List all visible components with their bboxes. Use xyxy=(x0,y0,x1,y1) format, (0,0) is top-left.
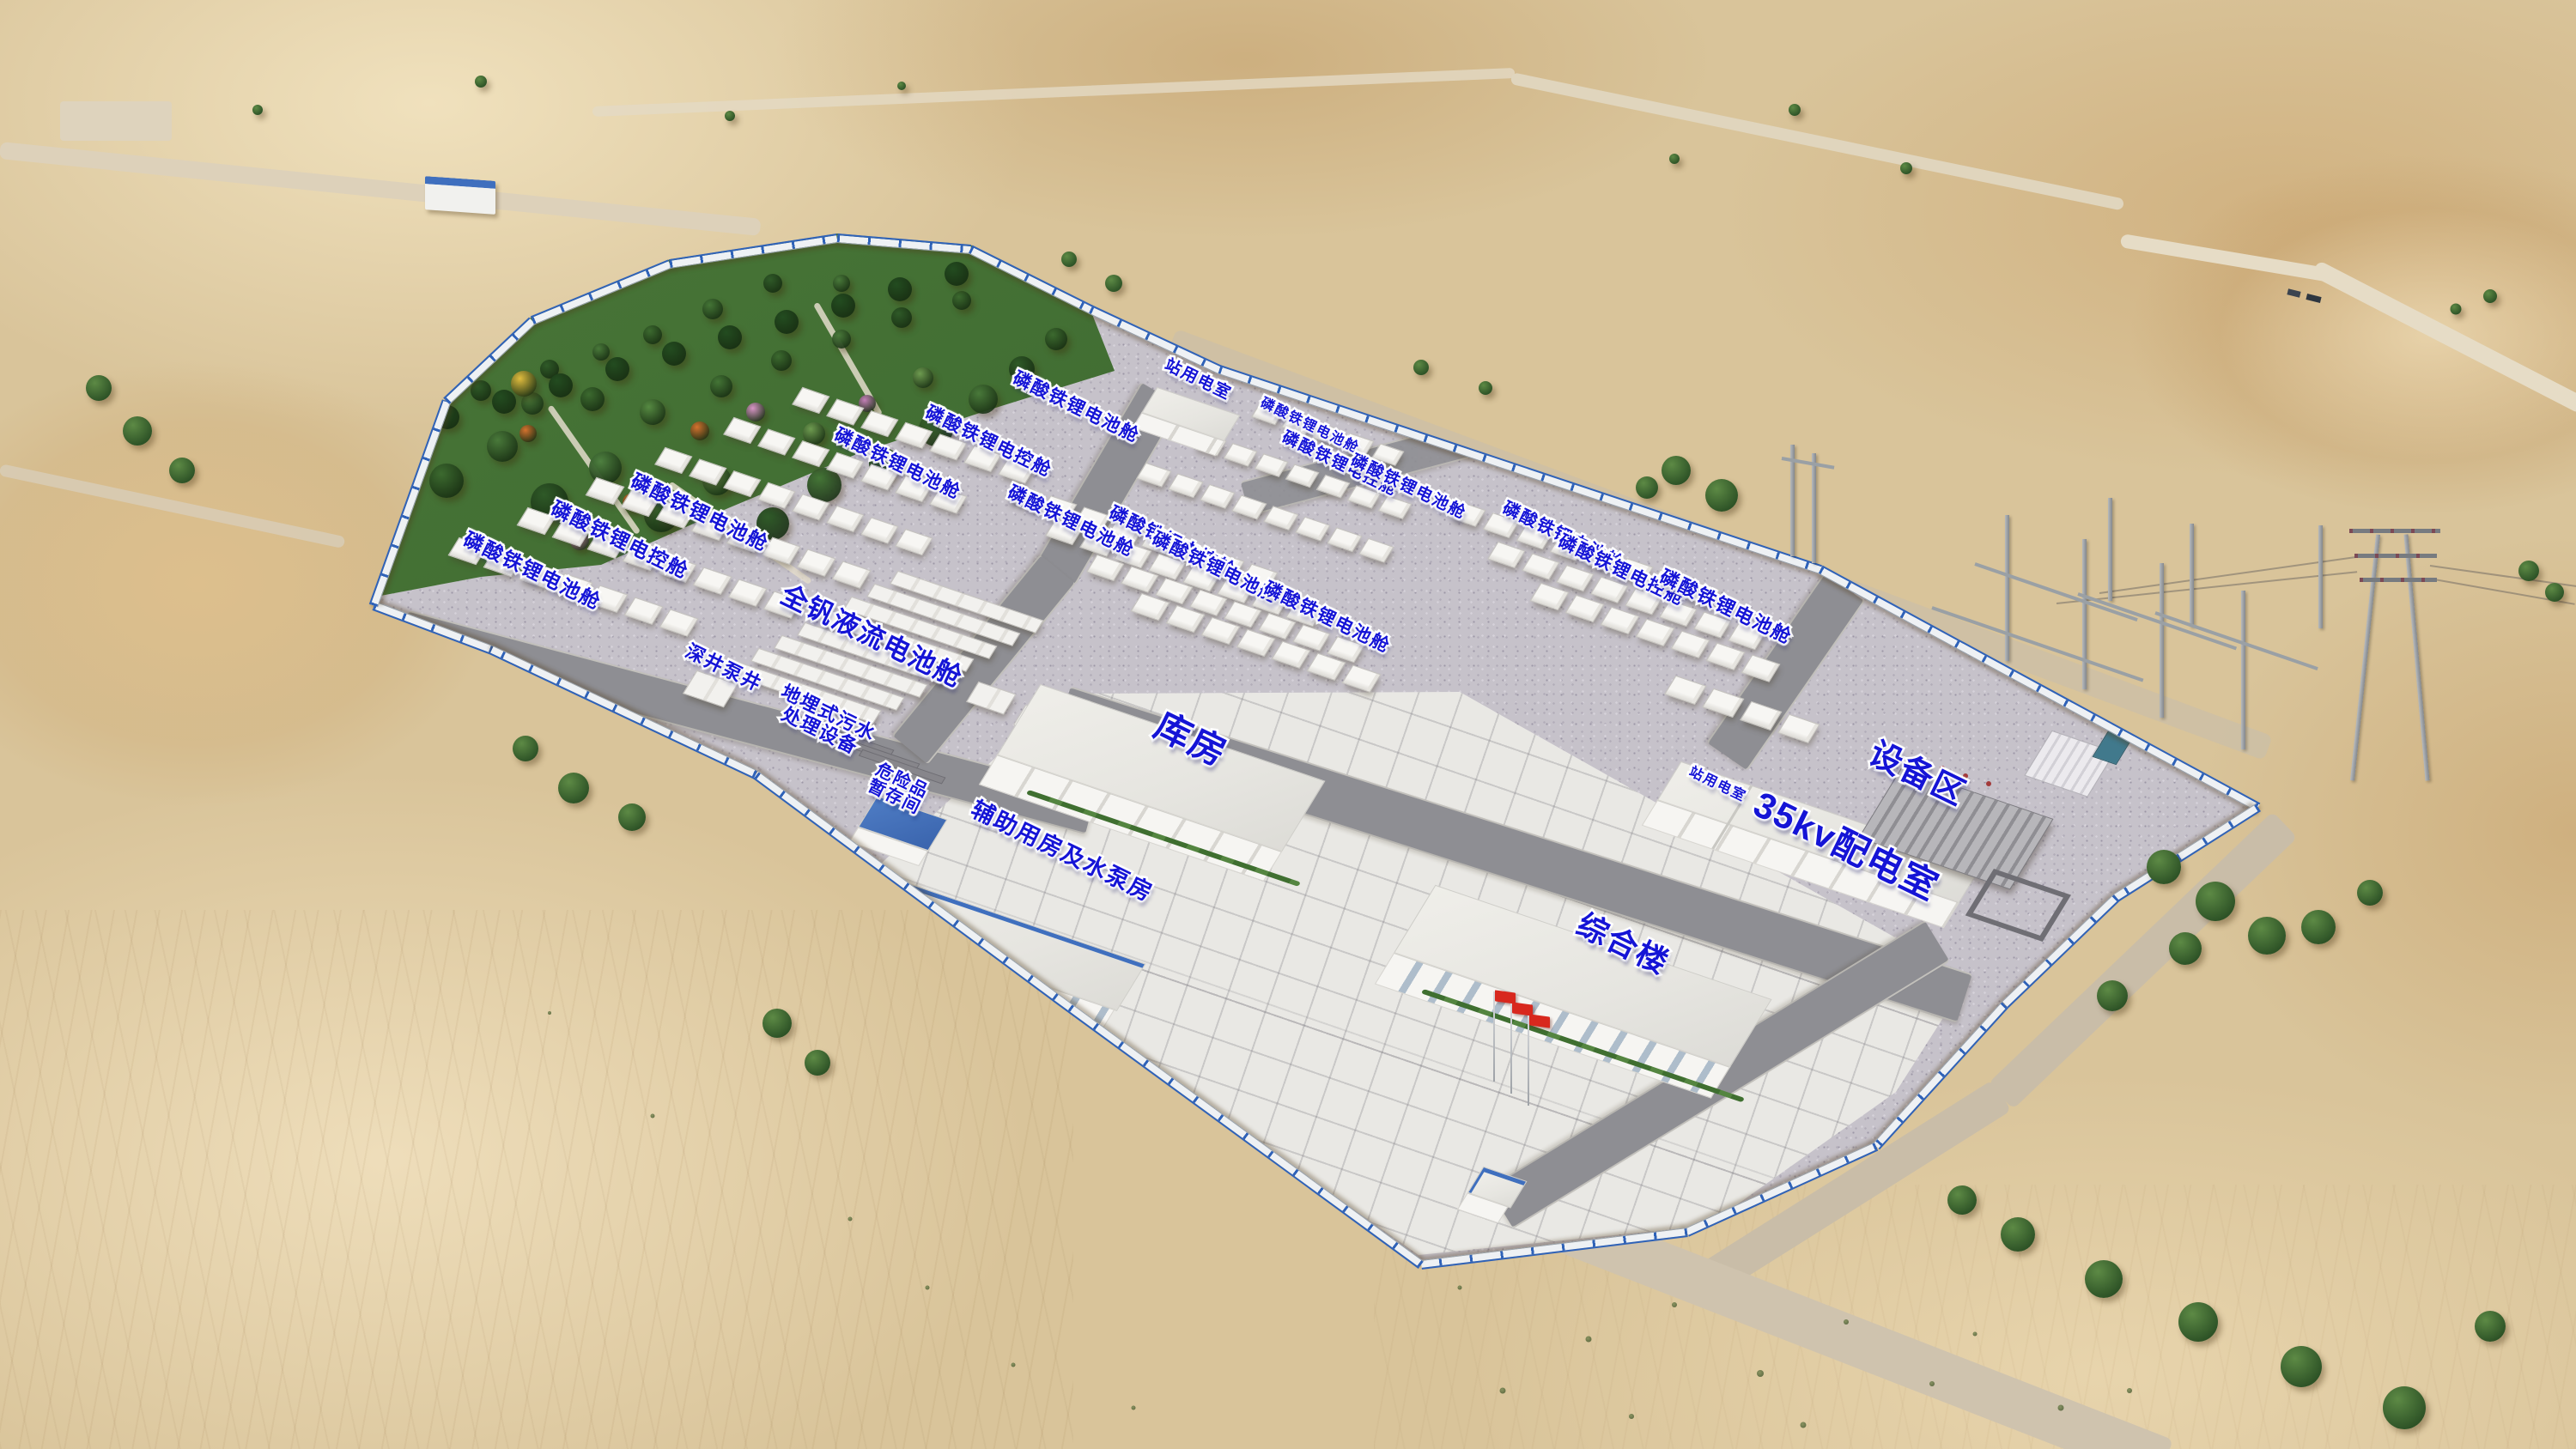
tree xyxy=(725,111,735,121)
tree xyxy=(618,803,646,831)
substation-mast xyxy=(2318,525,2323,628)
desert-shrub xyxy=(1500,1388,1506,1394)
battery-cabin-box xyxy=(1167,606,1204,632)
desert-shrub xyxy=(1844,1319,1849,1325)
desert-shrub xyxy=(1672,1302,1677,1307)
outside-road-top-1 xyxy=(0,142,761,236)
garden-tree xyxy=(605,357,629,381)
battery-cabin-box xyxy=(1224,444,1256,465)
tree xyxy=(2357,880,2383,906)
tree xyxy=(805,1050,830,1076)
tree xyxy=(2545,583,2564,602)
battery-cabin-box xyxy=(1566,596,1603,621)
desert-shrub xyxy=(1929,1381,1935,1386)
battery-cabin-box xyxy=(1273,642,1309,668)
substation-mast xyxy=(2190,524,2194,627)
garden-tree xyxy=(945,262,969,286)
desert-shrub xyxy=(548,1011,551,1015)
garden-tree xyxy=(771,350,792,371)
tree xyxy=(897,82,906,90)
garden-tree xyxy=(380,385,402,408)
tree xyxy=(2383,1386,2426,1429)
substation-beam xyxy=(1782,457,1835,470)
desert-shrub xyxy=(1586,1337,1592,1343)
outside-road-right-1 xyxy=(2120,233,2339,283)
battery-cabin-box xyxy=(625,598,662,624)
garden-tree xyxy=(580,387,605,411)
garden-tree xyxy=(429,464,464,498)
tree xyxy=(1636,476,1658,499)
desert-shrub xyxy=(926,1286,930,1290)
garden-tree xyxy=(891,307,912,328)
garden-tree xyxy=(718,325,742,349)
desert-shrub xyxy=(1801,1422,1807,1428)
tree xyxy=(252,105,263,115)
desert-shrub xyxy=(2058,1405,2064,1411)
tree xyxy=(2518,561,2539,581)
outside-road-top-3 xyxy=(1510,72,2125,210)
garden-tree xyxy=(763,274,782,293)
tree xyxy=(1479,381,1492,395)
battery-cabin-box xyxy=(1779,715,1819,743)
battery-cabin-box xyxy=(1707,644,1744,670)
garden-tree xyxy=(807,468,841,502)
desert-shrub xyxy=(1757,1370,1764,1377)
garden-tree xyxy=(803,422,825,445)
substation-mast xyxy=(2005,515,2009,661)
battery-cabin-box xyxy=(862,518,897,543)
battery-cabin-box xyxy=(1170,475,1202,498)
garden-tree xyxy=(492,390,516,414)
garden-tree xyxy=(379,421,403,446)
battery-cabin-box xyxy=(1704,689,1743,717)
flag-pole xyxy=(1493,991,1495,1082)
battery-cabin-box xyxy=(798,550,835,576)
tree xyxy=(1900,162,1912,174)
truck-1 xyxy=(2287,288,2300,297)
tree xyxy=(1662,456,1691,485)
battery-cabin-box xyxy=(1255,454,1287,476)
tree xyxy=(1789,104,1801,116)
garden-tree xyxy=(662,342,686,366)
battery-cabin-box xyxy=(1202,618,1239,644)
tree xyxy=(2475,1311,2506,1342)
tree xyxy=(169,458,195,483)
garden-tree xyxy=(592,343,610,361)
battery-cabin-box xyxy=(1601,608,1638,634)
tree xyxy=(2169,932,2202,965)
cable-pit-frame xyxy=(1965,869,2071,942)
tree xyxy=(1105,275,1122,292)
battery-cabin-box xyxy=(1531,584,1568,609)
garden-tree xyxy=(831,294,855,318)
garden-tree xyxy=(832,330,851,349)
garden-tree xyxy=(1045,328,1067,350)
battery-cabin-box xyxy=(1637,620,1674,646)
power-wire-2 xyxy=(2057,571,2357,604)
substation-mast xyxy=(2241,591,2245,749)
tree xyxy=(2178,1302,2218,1342)
dune-bowl-right xyxy=(2129,155,2576,515)
tree xyxy=(558,773,589,803)
tree xyxy=(513,736,538,761)
substation-mast xyxy=(2108,498,2112,601)
substation-mast xyxy=(2160,563,2164,718)
battery-cabin-box xyxy=(729,580,766,606)
dune-shadow-3 xyxy=(2190,532,2576,1133)
tree xyxy=(123,416,152,446)
desert-shrub xyxy=(1973,1332,1978,1337)
battery-cabin-box xyxy=(1308,654,1345,680)
battery-cabin-box xyxy=(759,483,794,508)
battery-cabin-box xyxy=(660,610,697,636)
battery-cabin-box xyxy=(1489,543,1524,567)
garden-tree xyxy=(519,425,537,442)
battery-cabin-box xyxy=(1328,528,1361,551)
garden-tree xyxy=(913,367,933,388)
battery-cabin-box xyxy=(1672,632,1709,658)
garden-tree xyxy=(888,277,912,301)
desert-shrub xyxy=(1012,1363,1016,1367)
tree xyxy=(2001,1217,2035,1252)
desert-shrub xyxy=(1458,1286,1462,1290)
substation-mast xyxy=(2082,539,2087,689)
truck-2 xyxy=(2306,294,2321,303)
desert-shrub xyxy=(2127,1388,2132,1393)
battery-cabin-box xyxy=(1666,676,1705,704)
garden-tree xyxy=(710,375,732,397)
tree xyxy=(2281,1346,2322,1387)
tree xyxy=(2301,910,2336,944)
tree xyxy=(1947,1185,1977,1215)
battery-cabin-box xyxy=(1132,594,1169,620)
battery-cabin-box xyxy=(1558,566,1593,591)
tree xyxy=(2483,289,2497,303)
tree xyxy=(2147,850,2181,884)
aerial-scene: 磷酸铁锂电池舱磷酸铁锂电控舱磷酸铁锂电池舱磷酸铁锂电池舱磷酸铁锂电控舱磷酸铁锂电… xyxy=(0,0,2576,1449)
garden-tree xyxy=(833,275,850,292)
parking-lot xyxy=(60,101,172,141)
tree xyxy=(1413,360,1429,375)
outside-road-right-2 xyxy=(2311,260,2576,414)
garden-tree xyxy=(396,447,411,463)
tree xyxy=(1705,479,1738,512)
garden-tree xyxy=(471,380,491,401)
tree xyxy=(762,1009,792,1038)
tree xyxy=(475,76,487,88)
garden-tree xyxy=(702,299,723,319)
tree xyxy=(86,375,112,401)
desert-shrub xyxy=(1629,1414,1634,1419)
tree xyxy=(1061,252,1077,267)
garden-tree xyxy=(746,403,765,421)
sand-tire-tracks xyxy=(0,910,1073,1449)
garden-tree xyxy=(952,291,971,310)
garden-tree xyxy=(775,310,799,334)
radiator-unit xyxy=(2026,731,2114,796)
tree xyxy=(2097,980,2128,1011)
transformer-bushing xyxy=(1986,781,1991,786)
battery-cabin-box xyxy=(1265,506,1297,530)
flag-pole xyxy=(1528,1016,1529,1106)
garden-tree xyxy=(589,452,622,484)
garden-tree xyxy=(511,371,537,397)
tree xyxy=(2196,882,2235,921)
substation-beam xyxy=(2154,611,2318,670)
desert-shrub xyxy=(848,1217,853,1222)
garden-tree xyxy=(487,431,518,462)
substation-mast xyxy=(1812,453,1816,563)
battery-cabin-box xyxy=(833,562,870,588)
garden-tree xyxy=(643,325,662,344)
garden-tree xyxy=(549,373,573,397)
battery-cabin-box xyxy=(1201,485,1234,508)
battery-cabin-box xyxy=(1237,630,1274,656)
tree xyxy=(2085,1260,2123,1298)
dune-shadow-1 xyxy=(773,0,1717,240)
tree xyxy=(2248,917,2286,955)
battery-cabin-box xyxy=(1297,518,1329,541)
substation-beam xyxy=(2077,592,2237,650)
outside-road-top-2 xyxy=(592,68,1516,117)
battery-cabin-box xyxy=(896,530,932,555)
garden-tree xyxy=(690,421,709,440)
desert-shrub xyxy=(651,1114,655,1119)
flag-pole xyxy=(1510,1003,1512,1094)
desert-shrub xyxy=(1132,1406,1136,1410)
battery-cabin-box xyxy=(1360,539,1393,562)
battery-cabin-box xyxy=(1379,496,1411,518)
blue-roof-building xyxy=(425,176,495,215)
battery-cabin-box xyxy=(828,506,863,531)
garden-tree xyxy=(640,399,665,425)
battery-cabin-box xyxy=(694,568,731,594)
battery-cabin-box xyxy=(1523,555,1558,579)
tree xyxy=(1669,154,1680,164)
garden-tree xyxy=(969,385,998,414)
tree xyxy=(2451,304,2462,315)
battery-cabin-box xyxy=(1343,666,1380,692)
